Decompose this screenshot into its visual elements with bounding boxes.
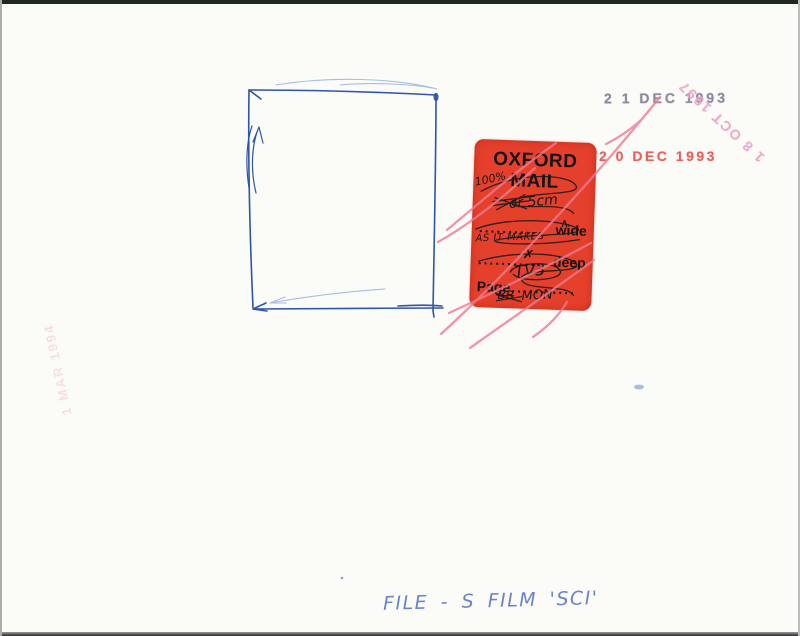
oxford-mail-sticker: OXFORD MAIL 100% or 5cm .......... wide …	[469, 139, 597, 311]
scribble-crossed-word	[493, 194, 530, 211]
blue-crop-rectangle	[247, 90, 443, 317]
light-blue-swooshes	[270, 79, 437, 303]
date-stamp-20-dec-1993: 2 0 DEC 1993	[599, 148, 717, 164]
scan-edge-top	[0, 0, 800, 4]
blue-smudge	[634, 385, 644, 390]
rect-top-edge	[249, 90, 436, 95]
left-squiggle-arrow	[247, 126, 263, 193]
scribble-deep-page	[478, 252, 578, 295]
black-ink-scribbles	[469, 139, 597, 311]
pink-diagonal-hook	[606, 120, 641, 144]
scribble-over-mail	[480, 174, 576, 213]
filing-caption-handwriting: FILE - S FILM 'SCI'	[383, 587, 599, 615]
bottom-inner-swoosh	[270, 289, 385, 303]
rect-right-edge	[433, 95, 436, 317]
rect-bottom-edge	[253, 303, 443, 311]
photo-back-scan: 2 1 DEC 1993 2 0 DEC 1993 1 8 OCT 1997 1…	[0, 0, 800, 636]
scan-edge-left	[0, 0, 2, 636]
rect-left-edge	[249, 90, 261, 308]
blue-speck	[341, 577, 344, 580]
scribble-wide-row	[475, 219, 580, 246]
scribble-bb-strike	[496, 295, 521, 302]
scan-edge-bottom	[0, 632, 800, 636]
top-swoosh	[276, 79, 437, 89]
date-stamp-faint-mar: 1 MAR 1994	[31, 277, 75, 417]
ink-blob-top-right	[433, 93, 438, 101]
